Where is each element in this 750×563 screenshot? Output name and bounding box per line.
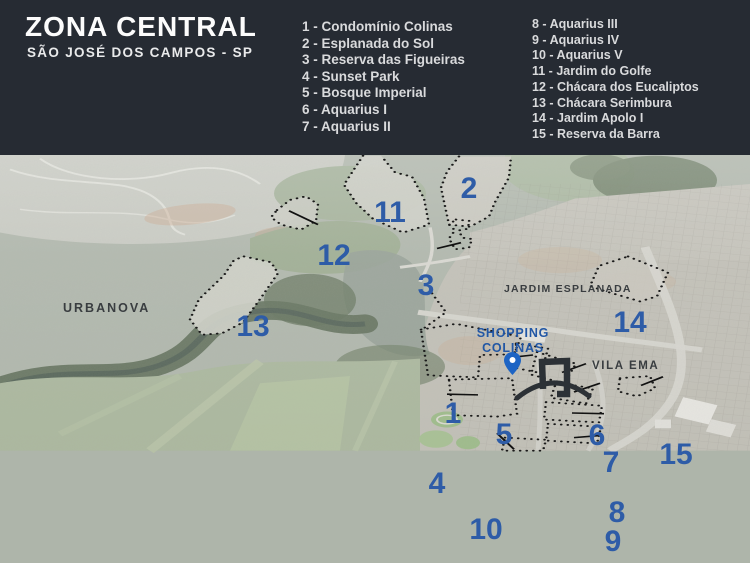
map-marker-3: 3 [418, 271, 435, 301]
colinas-arch-icon [514, 356, 592, 402]
legend-item-13: 13 - Chácara Serimbura [532, 96, 699, 112]
legend-item-3: 3 - Reserva das Figueiras [302, 52, 465, 69]
map-marker-12: 12 [317, 241, 350, 271]
header: ZONA CENTRAL SÃO JOSÉ DOS CAMPOS - SP 1 … [0, 0, 750, 155]
map-marker-4: 4 [429, 469, 446, 499]
legend-column-2: 8 - Aquarius III 9 - Aquarius IV 10 - Aq… [532, 17, 699, 143]
map-marker-14: 14 [613, 308, 646, 338]
legend-item-7: 7 - Aquarius II [302, 119, 465, 136]
area-label-jardim-esplanada: JARDIM ESPLANADA [504, 283, 632, 295]
map-marker-9: 9 [605, 527, 622, 557]
area-label-urbanova: URBANOVA [63, 301, 150, 315]
legend-item-14: 14 - Jardim Apolo I [532, 111, 699, 127]
legend-item-8: 8 - Aquarius III [532, 17, 699, 33]
map-marker-15: 15 [659, 440, 692, 470]
legend-item-1: 1 - Condomínio Colinas [302, 19, 465, 36]
map-marker-10: 10 [469, 515, 502, 545]
area-label-vila-ema: VILA EMA [592, 360, 659, 372]
legend-column-1: 1 - Condomínio Colinas 2 - Esplanada do … [302, 19, 465, 135]
infographic-map-page: ZONA CENTRAL SÃO JOSÉ DOS CAMPOS - SP 1 … [0, 0, 750, 563]
shopping-colinas-line1: SHOPPING [467, 326, 559, 341]
map-marker-7: 7 [603, 448, 620, 478]
leader-line-8 [572, 413, 604, 414]
page-subtitle: SÃO JOSÉ DOS CAMPOS - SP [27, 45, 253, 60]
legend-item-9: 9 - Aquarius IV [532, 33, 699, 49]
map-marker-1: 1 [445, 399, 462, 429]
legend-item-12: 12 - Chácara dos Eucaliptos [532, 80, 699, 96]
legend-item-4: 4 - Sunset Park [302, 69, 465, 86]
map-marker-13: 13 [236, 312, 269, 342]
satellite-map: URBANOVA JARDIM ESPLANADA VILA EMA SHOPP… [0, 155, 750, 563]
legend-item-5: 5 - Bosque Imperial [302, 85, 465, 102]
page-title: ZONA CENTRAL [25, 11, 257, 43]
legend-item-10: 10 - Aquarius V [532, 48, 699, 64]
legend-item-15: 15 - Reserva da Barra [532, 127, 699, 143]
legend-item-11: 11 - Jardim do Golfe [532, 64, 699, 80]
map-marker-5: 5 [496, 420, 513, 450]
map-marker-2: 2 [461, 174, 478, 204]
location-pin-icon [504, 352, 521, 375]
map-marker-11: 11 [374, 198, 406, 228]
leader-line-4 [447, 394, 478, 395]
legend-item-2: 2 - Esplanada do Sol [302, 36, 465, 53]
legend-item-6: 6 - Aquarius I [302, 102, 465, 119]
map-marker-8: 8 [609, 498, 626, 528]
